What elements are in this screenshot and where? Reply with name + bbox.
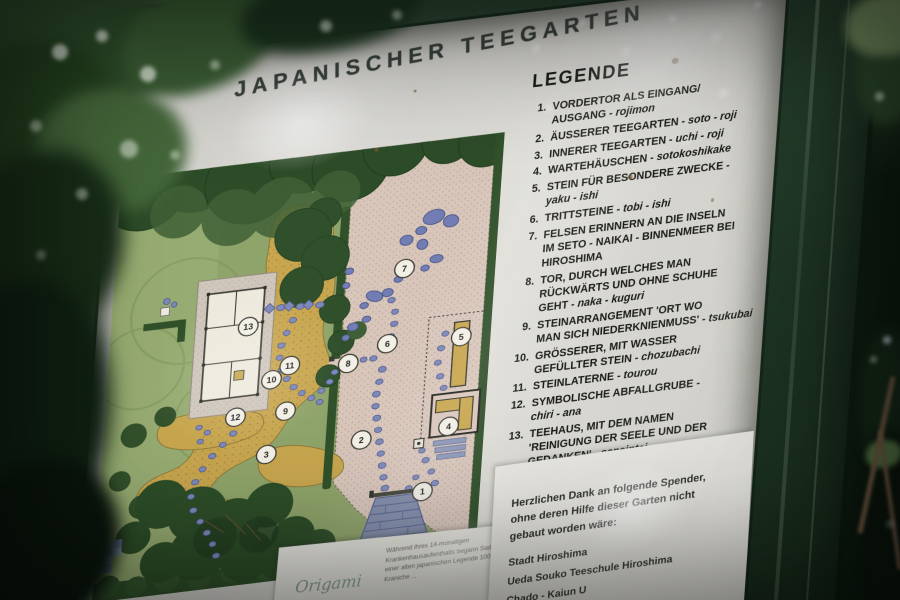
branch: [857, 376, 895, 534]
bokeh-light: [30, 120, 42, 132]
svg-text:1: 1: [420, 487, 426, 497]
svg-text:7: 7: [402, 264, 408, 274]
svg-text:13: 13: [243, 321, 254, 332]
svg-text:9: 9: [283, 406, 289, 416]
frame-moulding: [32, 13, 87, 600]
svg-text:2: 2: [358, 435, 364, 445]
bokeh-light: [870, 356, 877, 363]
svg-text:10: 10: [266, 375, 277, 386]
origami-word: Origami: [294, 571, 362, 597]
branch: [878, 430, 900, 569]
stain-speck: [413, 89, 416, 92]
leaf-cluster: [866, 440, 900, 468]
bokeh-light: [52, 44, 68, 60]
svg-text:4: 4: [446, 421, 452, 431]
bokeh-light: [883, 336, 891, 344]
svg-text:5: 5: [458, 332, 464, 342]
svg-text:12: 12: [230, 412, 241, 423]
bokeh-light: [886, 520, 894, 528]
leaf-cluster: [860, 330, 900, 460]
svg-text:8: 8: [345, 359, 351, 369]
bokeh-light: [875, 92, 884, 101]
garden-map: 1 2 3 4 5 6 7 8 9 10 11 12 13: [92, 132, 505, 600]
tea-house-plan: [189, 272, 277, 419]
legend: LEGENDE 1.VORDERTOR ALS EINGANG/ AUSGANG…: [499, 41, 779, 476]
sign-board-frame: JAPANISCHER TEEGARTEN: [22, 0, 888, 600]
svg-text:3: 3: [263, 450, 269, 460]
leaf-cluster: [855, 430, 900, 600]
frame-moulding: [800, 0, 855, 600]
svg-text:11: 11: [285, 360, 295, 371]
sign-paper: JAPANISCHER TEEGARTEN: [66, 0, 787, 600]
svg-text:6: 6: [385, 339, 391, 349]
garden-sign-photo: JAPANISCHER TEEGARTEN: [0, 0, 900, 600]
bokeh-light: [36, 250, 46, 260]
